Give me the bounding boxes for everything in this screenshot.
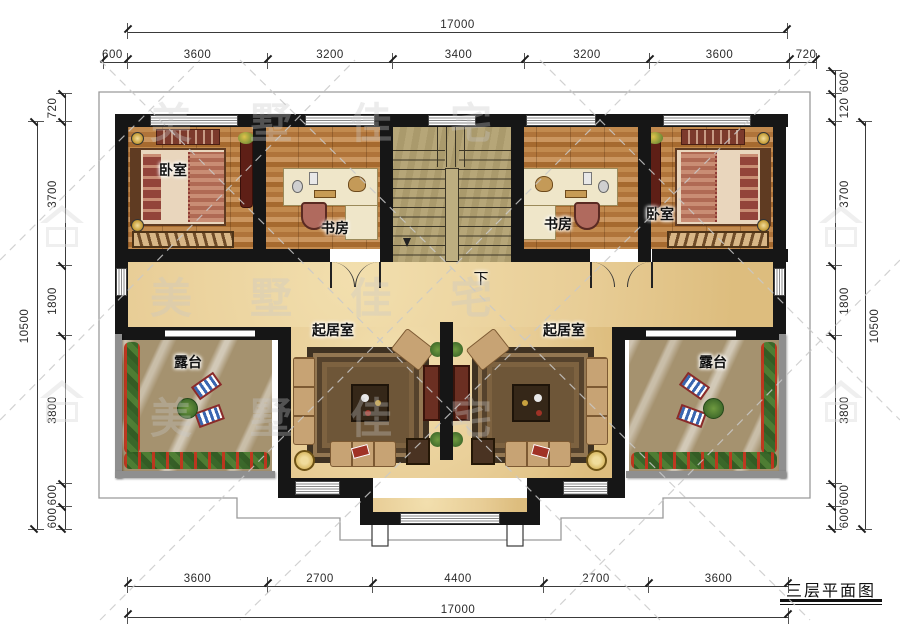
stair-top-rails <box>437 127 467 167</box>
wall-corridor <box>115 249 330 262</box>
dim-right-overall: 10500 <box>856 121 872 530</box>
floor-clock <box>294 450 315 471</box>
sofa <box>293 357 315 445</box>
bedroom-bench <box>132 231 234 248</box>
terrace-parapet <box>115 471 275 478</box>
window <box>428 115 476 126</box>
dim-bottom-segments: 3600 2700 4400 2700 3600 <box>127 577 789 593</box>
computer-mouse <box>292 180 303 193</box>
wall-living-divider <box>440 322 453 460</box>
dim-left-segments: 720 3700 1800 3800 600 600 <box>56 93 72 530</box>
wall-stair-studyR <box>511 114 524 262</box>
hall-floor <box>128 262 773 327</box>
window <box>774 268 785 296</box>
desk-lamp <box>535 176 553 192</box>
plant-stand <box>240 138 253 208</box>
coffee-table <box>351 384 389 422</box>
pillows <box>740 154 758 220</box>
wall-corridor <box>652 249 788 262</box>
floor-clock <box>586 450 607 471</box>
window <box>116 268 127 296</box>
tv-cabinet <box>453 365 470 421</box>
stair-landing-strip <box>445 168 459 262</box>
dim-top-overall: 17000 <box>127 23 788 39</box>
speaker-cabinet <box>406 438 430 465</box>
headboard <box>760 150 769 224</box>
nightstand-lamp <box>131 132 144 145</box>
room-label-study-right: 书房 <box>544 214 572 234</box>
desk-chair <box>574 202 600 230</box>
plant-flowers <box>238 132 254 144</box>
wardrobe <box>156 129 220 145</box>
bed <box>675 148 771 226</box>
terrace-left-plants-bottom <box>124 452 270 469</box>
wall-right <box>773 114 786 334</box>
stair-direction-arrow <box>403 238 411 247</box>
quilt <box>681 152 717 222</box>
wall-living-left <box>278 327 291 498</box>
dim-bottom-overall: 17000 <box>127 608 789 624</box>
desk-return <box>345 205 378 240</box>
wall-studyL-stair <box>380 114 393 262</box>
drawing-title: 三层平面图 <box>786 577 876 601</box>
terrace-left-plants-edge <box>124 342 140 454</box>
window <box>305 115 375 126</box>
wall-corridor <box>524 249 590 262</box>
title-underline-thin <box>780 604 882 605</box>
bedroom-bench <box>667 231 769 248</box>
window <box>663 115 751 126</box>
coffee-table <box>512 384 550 422</box>
window <box>526 115 596 126</box>
bay-window <box>400 513 500 524</box>
room-label-terrace-left: 露台 <box>174 352 202 372</box>
door-leaf <box>651 262 653 288</box>
room-label-bedroom-left: 卧室 <box>159 160 187 180</box>
dim-left-overall: 10500 <box>28 121 44 530</box>
floor-plan-canvas: 卧室 书房 书房 卧室 起居室 起居室 露台 露台 下 17000 600 36… <box>0 0 900 639</box>
room-label-study-left: 书房 <box>321 218 349 238</box>
desk-lamp <box>348 176 366 192</box>
wall-living-right <box>612 327 625 498</box>
room-label-terrace-right: 露台 <box>699 352 727 372</box>
desk-phone <box>583 172 592 185</box>
door-leaf <box>379 262 381 288</box>
dim-top-segments: 600 3600 3200 3400 3200 3600 720 <box>103 53 817 69</box>
quilt <box>188 152 224 222</box>
room-label-living-right: 起居室 <box>543 320 585 340</box>
terrace-table <box>703 398 724 419</box>
terrace-sliding-door <box>646 330 736 337</box>
terrace-table <box>177 398 198 419</box>
terrace-sliding-door <box>165 330 255 337</box>
terrace-right-plants-bottom <box>631 452 777 469</box>
keyboard <box>314 190 336 198</box>
terrace-right-plants-edge <box>761 342 777 454</box>
speaker-cabinet <box>471 438 495 465</box>
wardrobe <box>681 129 745 145</box>
room-label-living-left: 起居室 <box>312 320 354 340</box>
dim-right-segments: 600 120 3700 1800 3800 600 600 <box>826 70 842 530</box>
sofa <box>586 357 608 445</box>
nightstand-lamp <box>757 132 770 145</box>
wall-left <box>115 114 128 334</box>
wall-bedroomL-studyL <box>253 114 266 262</box>
stair-down-label: 下 <box>473 268 488 289</box>
computer-mouse <box>598 180 609 193</box>
desk-phone <box>309 172 318 185</box>
window <box>295 481 340 495</box>
keyboard <box>565 190 587 198</box>
terrace-parapet <box>779 334 786 478</box>
terrace-parapet <box>115 334 122 478</box>
title-underline-thick <box>780 599 882 602</box>
wall-studyR-bedroomR <box>638 114 651 262</box>
terrace-parapet <box>626 471 786 478</box>
window <box>563 481 608 495</box>
window <box>150 115 238 126</box>
headboard <box>132 150 141 224</box>
room-label-bedroom-right: 卧室 <box>646 204 674 224</box>
tv-cabinet <box>423 365 440 421</box>
